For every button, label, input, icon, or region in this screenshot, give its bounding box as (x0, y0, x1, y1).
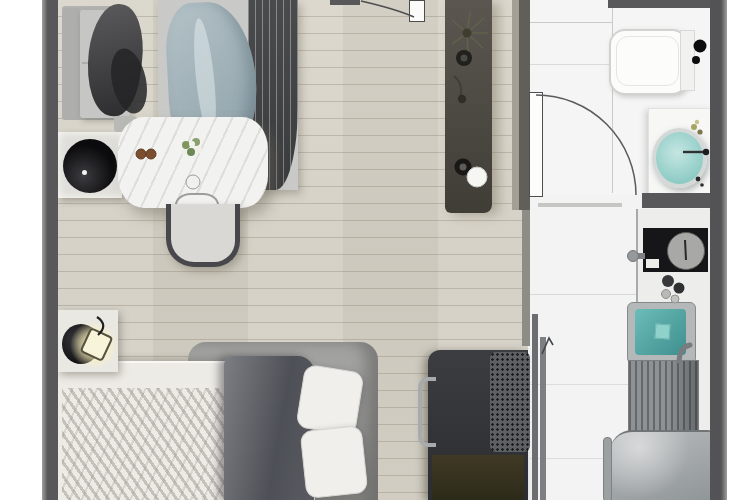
sofa-backrest (62, 8, 80, 120)
pillow (300, 425, 369, 499)
bathroom-sink (652, 128, 707, 188)
toilet-seat-line (616, 36, 679, 86)
sliding-door-panel (540, 337, 546, 500)
entry-door-leaf (409, 0, 425, 22)
wall-left (42, 0, 58, 500)
toilet-tank (680, 30, 695, 91)
floor-plan (0, 0, 750, 500)
refrigerator (610, 430, 714, 500)
cooktop-control (646, 259, 659, 268)
sink-drain (654, 323, 670, 339)
dining-chair (166, 204, 240, 267)
tile-joint (530, 22, 612, 23)
wall-right (710, 0, 727, 500)
drain-board (628, 360, 699, 432)
wall-top-entry (330, 0, 360, 5)
cooktop-dial (667, 232, 705, 270)
wall-bathroom-left (512, 0, 530, 210)
tile-joint (612, 0, 613, 193)
wall-bathroom-top (608, 0, 710, 8)
tile-joint (530, 294, 636, 295)
door-threshold (538, 203, 622, 207)
tabletop-highlight (82, 170, 87, 175)
tile-joint (530, 64, 610, 65)
entry-console-shelf (445, 0, 492, 213)
desk-handle (418, 377, 436, 447)
wall-bathroom-bottom (642, 193, 710, 208)
wall-partition (522, 210, 530, 346)
pillow (295, 364, 364, 437)
dark-blanket (224, 356, 314, 500)
desk-lower-shelf (432, 455, 524, 500)
refrigerator-handle (603, 437, 612, 500)
black-round-tabletop (63, 139, 117, 193)
bathroom-door-leaf (529, 92, 543, 197)
knit-throw (62, 388, 230, 500)
sliding-door-panel (532, 314, 538, 500)
desk-chair-cushion (490, 352, 530, 452)
